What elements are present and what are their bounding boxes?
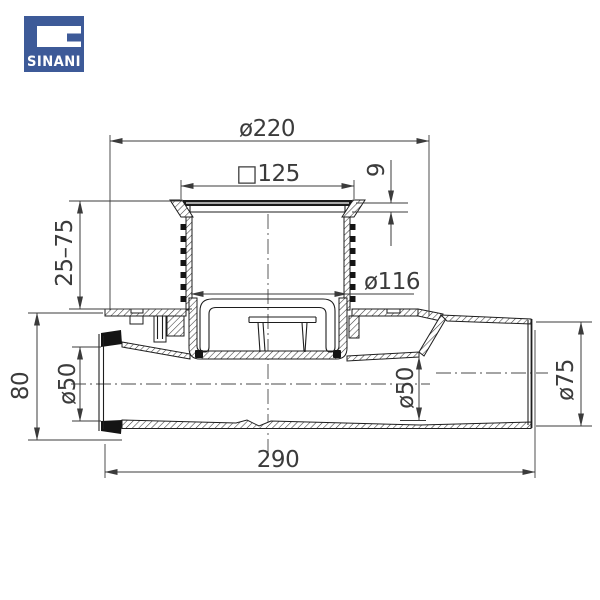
dim-label-top-flange-diameter: ø220 <box>239 116 295 142</box>
riser-wall-right <box>344 217 350 310</box>
dim-label-outlet-outer-diameter: ø75 <box>553 359 579 401</box>
dim-inlet-diameter: ø50 <box>55 347 101 421</box>
dim-label-grate-square-size: □125 <box>236 161 300 187</box>
standpipe <box>249 317 316 352</box>
body-flange <box>105 309 443 342</box>
flange-step-right <box>349 316 359 338</box>
clamp-block <box>167 316 184 336</box>
inlet-socket <box>99 330 122 434</box>
gasket-top <box>101 330 122 347</box>
dim-adjustable-height-range: 25–75 <box>52 201 192 309</box>
trap-bell <box>200 299 335 352</box>
dim-body-inner-diameter: ø116 <box>191 269 420 295</box>
dim-label-adjustable-height-range: 25–75 <box>52 219 78 287</box>
centerlines <box>71 214 548 452</box>
pipe-top-left <box>122 342 190 359</box>
dim-label-grate-frame-height: 9 <box>364 163 390 177</box>
outlet-top <box>441 315 531 324</box>
dim-label-outlet-bore-diameter: ø50 <box>393 367 419 409</box>
dim-label-body-inner-diameter: ø116 <box>364 269 420 295</box>
gasket-bottom <box>101 420 122 434</box>
brand-name: SINANI <box>27 54 81 70</box>
dim-grate-square-size: □125 <box>181 161 354 199</box>
dim-label-inlet-diameter: ø50 <box>55 363 81 405</box>
flange-right <box>352 309 418 316</box>
outlet-cone <box>419 315 447 356</box>
pipe-top-right <box>347 352 419 361</box>
dim-label-overall-length: 290 <box>257 447 299 473</box>
clamp-pin <box>154 316 166 342</box>
flange-left <box>105 309 186 316</box>
dim-outlet-outer-diameter: ø75 <box>536 322 592 426</box>
pipe-bottom <box>122 420 531 429</box>
dim-outlet-bore-diameter: ø50 <box>393 357 426 421</box>
riser-wall-left <box>186 217 192 310</box>
dim-grate-frame-height: 9 <box>352 160 408 246</box>
flange-clip <box>130 316 143 324</box>
dim-label-inlet-height: 80 <box>8 372 34 400</box>
brand-logo: SINANI <box>24 16 84 72</box>
technical-drawing: SINANI <box>0 0 600 600</box>
drawing-sheet: SINANI <box>0 0 600 600</box>
